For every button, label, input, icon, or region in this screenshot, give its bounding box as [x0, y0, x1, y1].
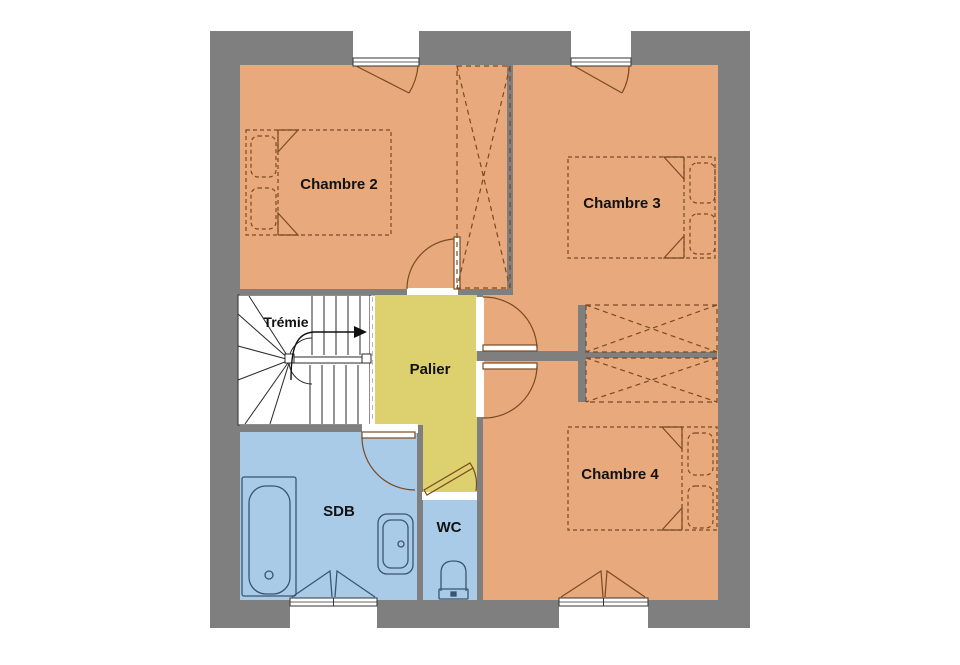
floor-plan-svg: Chambre 2 Chambre 3 Chambre 4 Palier Tré…	[0, 0, 960, 665]
wall-below-closet	[457, 289, 513, 295]
stair-newel-post-right	[362, 354, 371, 363]
label-sdb: SDB	[323, 503, 355, 520]
floor-plan-page: Chambre 2 Chambre 3 Chambre 4 Palier Tré…	[0, 0, 960, 665]
wc-floor	[422, 500, 477, 600]
doorway-chambre3	[476, 297, 484, 351]
doorway-chambre2	[407, 288, 458, 295]
wall-bathroom-top	[240, 425, 362, 432]
wall-wardrobes-left	[578, 305, 586, 402]
wall-between-wardrobes	[585, 352, 717, 358]
label-chambre3: Chambre 3	[583, 195, 661, 212]
label-palier: Palier	[410, 361, 451, 378]
label-chambre2: Chambre 2	[300, 176, 378, 193]
label-wc: WC	[437, 519, 462, 536]
wall-bathroom-wc	[417, 425, 423, 600]
label-chambre4: Chambre 4	[581, 466, 659, 483]
wall-chambre2-hall	[240, 289, 407, 295]
label-tremie: Trémie	[263, 314, 308, 330]
wall-stub-between-doors	[477, 351, 585, 361]
